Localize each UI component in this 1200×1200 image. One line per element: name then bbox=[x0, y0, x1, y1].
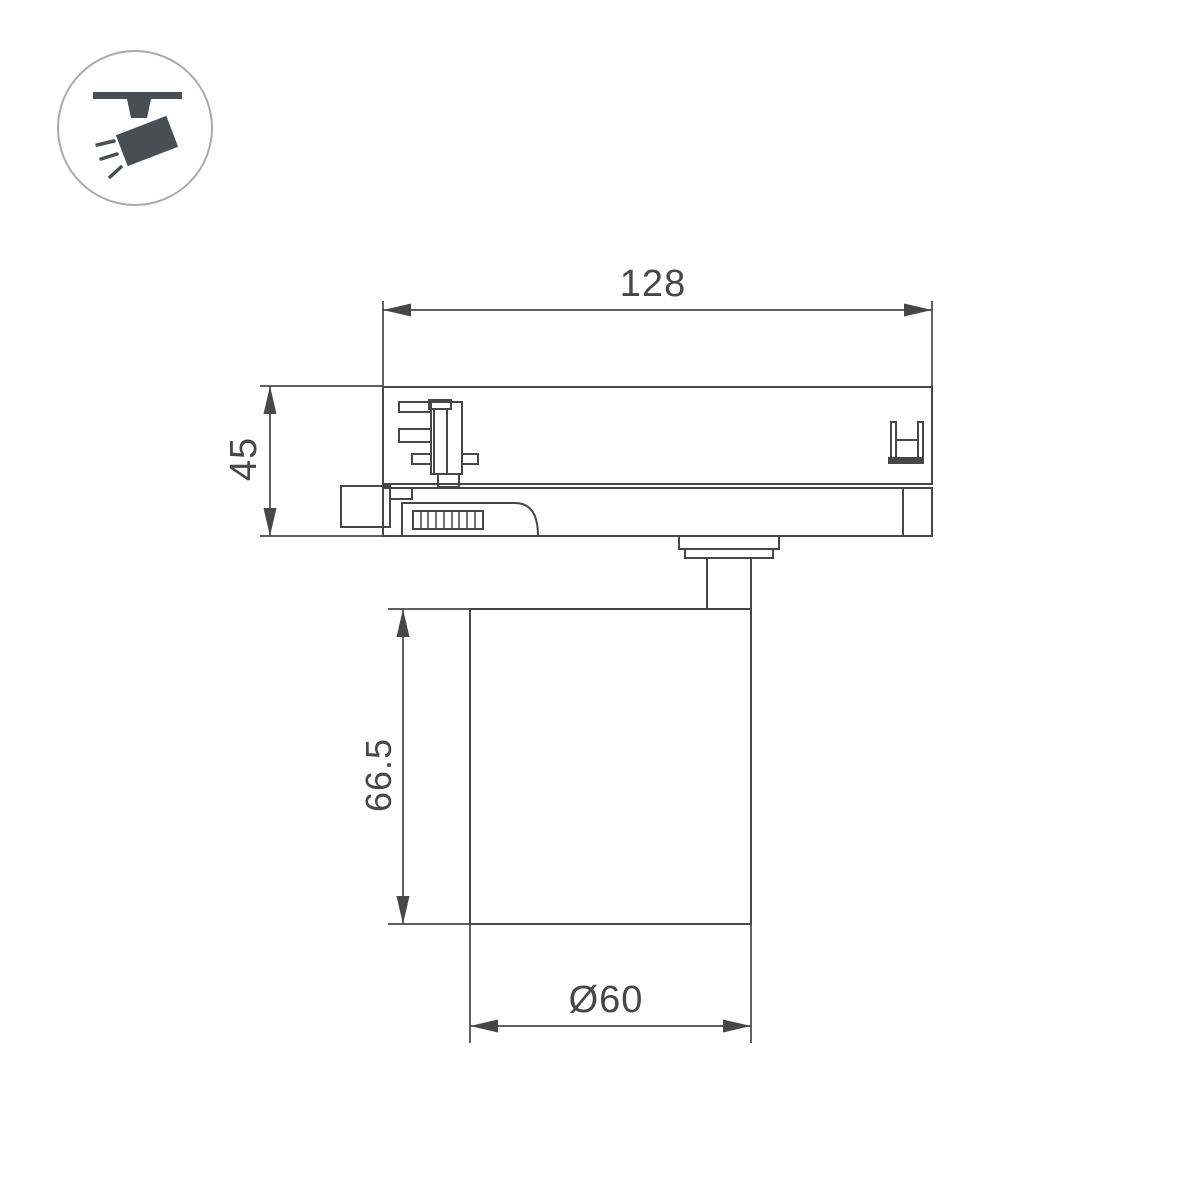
contact-stem-channel bbox=[434, 409, 447, 474]
contact-right-finger bbox=[462, 454, 478, 464]
contact-prong-bottom bbox=[412, 454, 431, 464]
adapter-grip-plate bbox=[402, 503, 538, 536]
arrowhead-bottom bbox=[264, 508, 277, 536]
adapter-contact-assembly bbox=[399, 400, 478, 487]
adapter-latch-step bbox=[390, 488, 412, 499]
arrowhead-top bbox=[397, 609, 410, 637]
dimension-body-height-label: 66.5 bbox=[358, 738, 399, 812]
dimension-overall-width-label: 128 bbox=[620, 263, 686, 305]
arrowhead-left bbox=[470, 1020, 498, 1033]
clip-left-post bbox=[891, 422, 896, 463]
dimension-body-height bbox=[388, 609, 470, 924]
icon-stem bbox=[127, 99, 151, 118]
dimension-adapter-height bbox=[260, 386, 396, 536]
dimension-body-diameter-label: Ø60 bbox=[569, 979, 644, 1021]
clip-right-post bbox=[918, 422, 923, 463]
adapter-grip-ribs bbox=[421, 511, 475, 529]
arrowhead-left bbox=[383, 304, 411, 317]
swivel-flange-lower bbox=[685, 549, 773, 558]
dimension-overall-width bbox=[383, 301, 932, 386]
adapter-upper-housing bbox=[383, 387, 932, 484]
contact-prong-top bbox=[399, 402, 431, 412]
track-spotlight-icon bbox=[58, 51, 212, 205]
lamp-stem bbox=[707, 558, 751, 609]
lamp-assembly bbox=[470, 536, 779, 924]
arrowhead-bottom bbox=[397, 896, 410, 924]
adapter-lock-clip bbox=[889, 422, 923, 463]
dimension-adapter-height-label: 45 bbox=[223, 437, 265, 481]
technical-drawing-canvas: 128 45 66.5 Ø60 bbox=[0, 0, 1200, 1200]
contact-foot bbox=[438, 474, 459, 487]
icon-ceiling-track-bar bbox=[93, 92, 182, 99]
arrowhead-top bbox=[264, 386, 277, 414]
lamp-body bbox=[470, 609, 751, 924]
contact-prong-middle bbox=[399, 429, 431, 442]
arrowhead-right bbox=[723, 1020, 751, 1033]
clip-bottom-bar bbox=[889, 458, 923, 463]
swivel-flange-upper bbox=[679, 536, 779, 549]
adapter-grip-ribs-frame bbox=[413, 511, 483, 529]
arrowhead-right bbox=[904, 304, 932, 317]
technical-drawing-page: 128 45 66.5 Ø60 bbox=[0, 0, 1200, 1200]
